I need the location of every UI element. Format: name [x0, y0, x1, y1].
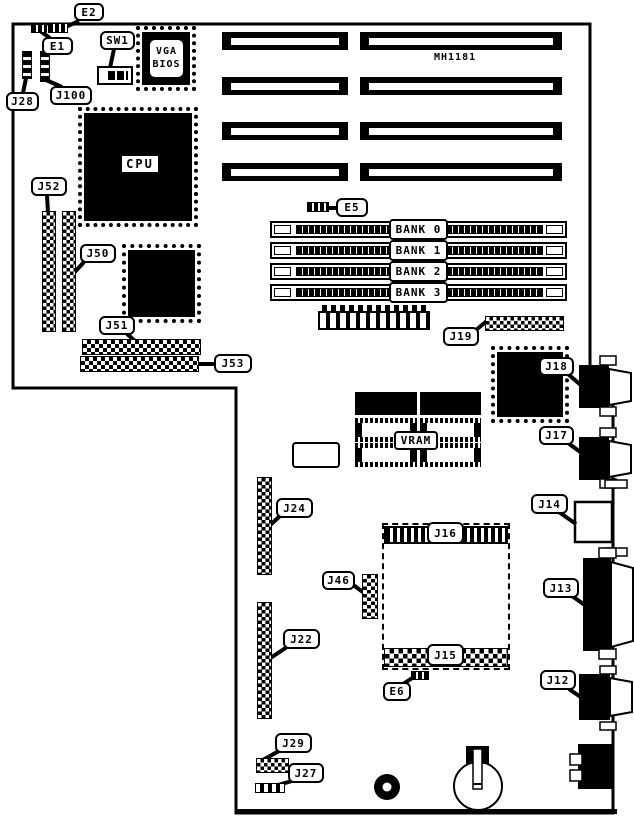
- header-j52: [42, 211, 56, 332]
- header-j46: [362, 574, 378, 619]
- jumper-e1: [31, 24, 47, 33]
- callout-j52: J52: [31, 177, 67, 196]
- motherboard-diagram: VGA BIOS CPU MH1181 BANK 0 BANK 1 B: [0, 0, 634, 823]
- dsub-connector-j18: [579, 356, 631, 416]
- callout-j53: J53: [214, 354, 252, 373]
- chipset-chip: [128, 250, 195, 317]
- callout-j27: J27: [288, 763, 324, 783]
- jumper-e6: [411, 671, 429, 680]
- header-j29: [256, 758, 289, 773]
- jumper-e2: [48, 23, 68, 33]
- callout-j100: J100: [50, 86, 92, 105]
- callout-e6: E6: [383, 682, 411, 701]
- header-j51: [82, 339, 201, 355]
- speaker: [374, 774, 400, 800]
- simm-clip: [546, 267, 563, 276]
- header-j28: [22, 51, 32, 79]
- callout-j19: J19: [443, 327, 479, 346]
- bank-label-0: BANK 0: [389, 219, 448, 240]
- vga-bios-line1: VGA: [156, 46, 177, 59]
- cpu-label: CPU: [122, 156, 158, 172]
- header-j19: [485, 316, 564, 331]
- dsub-connector-j12: [579, 666, 632, 730]
- callout-j29: J29: [275, 733, 312, 753]
- oscillator: [292, 442, 340, 468]
- bank-label-1: BANK 1: [389, 240, 448, 261]
- callout-j14: J14: [531, 494, 568, 514]
- jumper-e5: [307, 202, 329, 212]
- callout-j50: J50: [80, 244, 116, 263]
- callout-e1: E1: [42, 37, 73, 55]
- dsub-connector-j13: [583, 548, 633, 659]
- callout-j15: J15: [427, 644, 464, 666]
- battery: [454, 746, 502, 810]
- callout-j12: J12: [540, 670, 576, 690]
- vga-bios-line2: BIOS: [152, 59, 180, 72]
- bank-label-2: BANK 2: [389, 261, 448, 282]
- callout-sw1: SW1: [100, 31, 135, 50]
- callout-j17: J17: [539, 426, 574, 445]
- callout-j24: J24: [276, 498, 313, 518]
- power-connector: [318, 311, 430, 330]
- callout-j22: J22: [283, 629, 320, 649]
- callout-e5: E5: [336, 198, 368, 217]
- callout-j18: J18: [539, 357, 574, 376]
- header-j27: [255, 783, 285, 793]
- callout-j13: J13: [543, 578, 579, 598]
- board-bottom-edge: [236, 809, 617, 814]
- simm-clip: [274, 267, 291, 276]
- header-j53: [80, 356, 199, 372]
- header-j50: [62, 211, 76, 332]
- simm-clip: [546, 246, 563, 255]
- simm-clip: [274, 288, 291, 297]
- callout-j16: J16: [427, 522, 464, 544]
- bank-label-3: BANK 3: [389, 282, 448, 303]
- power-connector-bottom: [570, 744, 614, 789]
- vga-bios-chip: VGA BIOS: [142, 32, 190, 85]
- simm-clip: [546, 288, 563, 297]
- header-j100: [40, 51, 50, 82]
- dip-switch-positions: [108, 71, 128, 80]
- header-j22: [257, 602, 272, 719]
- callout-j46: J46: [322, 571, 355, 590]
- dsub-connector-j17: [579, 428, 631, 488]
- vram-label: VRAM: [394, 431, 438, 450]
- callout-e2: E2: [74, 3, 104, 21]
- din-connector-j14: [575, 480, 627, 556]
- callout-j51: J51: [99, 316, 135, 335]
- simm-clip: [274, 246, 291, 255]
- dip-switch-sw1: [97, 66, 133, 85]
- callout-j28: J28: [6, 92, 39, 111]
- vga-bios-label: VGA BIOS: [150, 40, 183, 77]
- board-model-text: MH1181: [434, 52, 476, 63]
- vram-chip-1: [355, 392, 417, 415]
- simm-clip: [546, 225, 563, 234]
- simm-clip: [274, 225, 291, 234]
- vram-chip-2: [420, 392, 481, 415]
- header-j24: [257, 477, 272, 575]
